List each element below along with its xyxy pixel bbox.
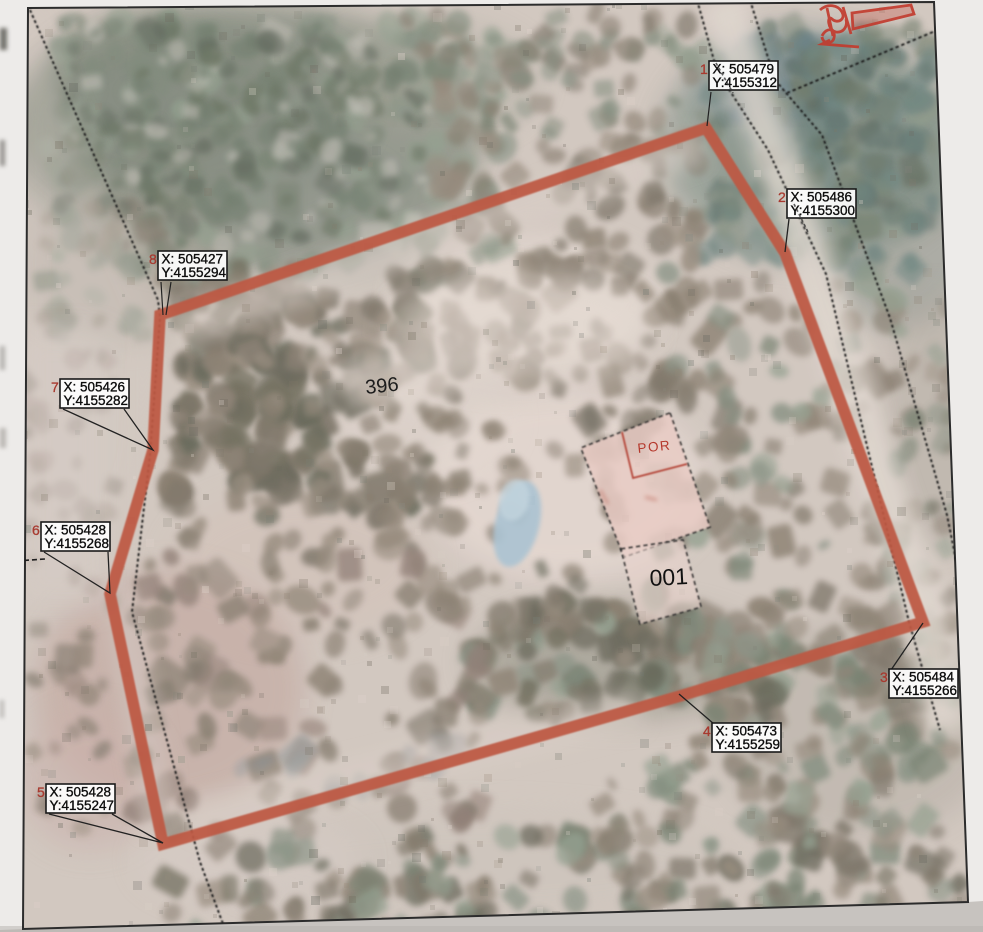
svg-text:6: 6 <box>32 522 40 538</box>
svg-text:Y:4155259: Y:4155259 <box>716 737 781 752</box>
svg-text:3: 3 <box>880 669 888 685</box>
svg-text:Y:4155312: Y:4155312 <box>713 75 778 90</box>
svg-text:Y:4155294: Y:4155294 <box>162 265 227 280</box>
svg-text:396: 396 <box>364 374 399 399</box>
svg-text:7: 7 <box>51 379 59 395</box>
svg-text:Y:4155266: Y:4155266 <box>893 683 958 698</box>
svg-text:001: 001 <box>649 563 689 591</box>
svg-text:1: 1 <box>700 61 708 77</box>
svg-text:5: 5 <box>37 784 45 800</box>
svg-text:8: 8 <box>149 251 157 267</box>
svg-text:4: 4 <box>703 723 711 739</box>
svg-text:Y:4155247: Y:4155247 <box>50 798 115 813</box>
svg-text:2: 2 <box>778 189 786 205</box>
svg-text:Y:4155268: Y:4155268 <box>45 536 110 551</box>
svg-text:Y:4155282: Y:4155282 <box>64 393 129 408</box>
